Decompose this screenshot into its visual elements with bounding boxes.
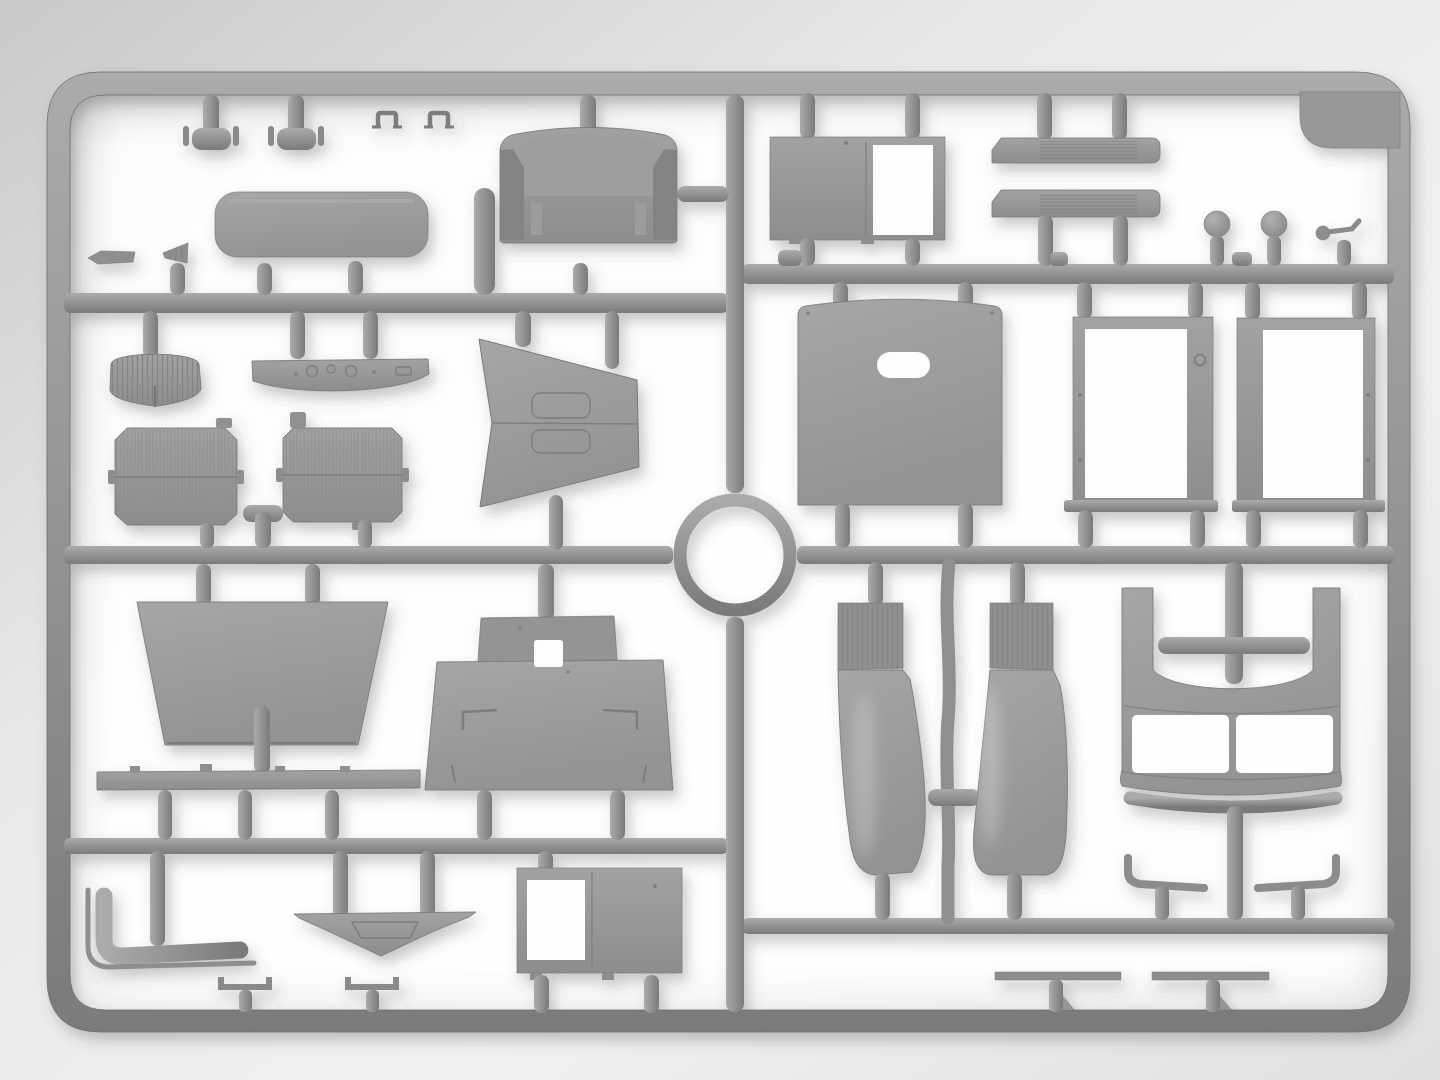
photo-canvas	[0, 0, 1440, 1080]
fender-pair	[838, 562, 1067, 920]
corner-gusset	[1300, 92, 1400, 148]
door-frame-left	[1064, 282, 1218, 548]
door-frame-right	[1232, 282, 1385, 548]
sprue-photo	[0, 0, 1440, 1080]
